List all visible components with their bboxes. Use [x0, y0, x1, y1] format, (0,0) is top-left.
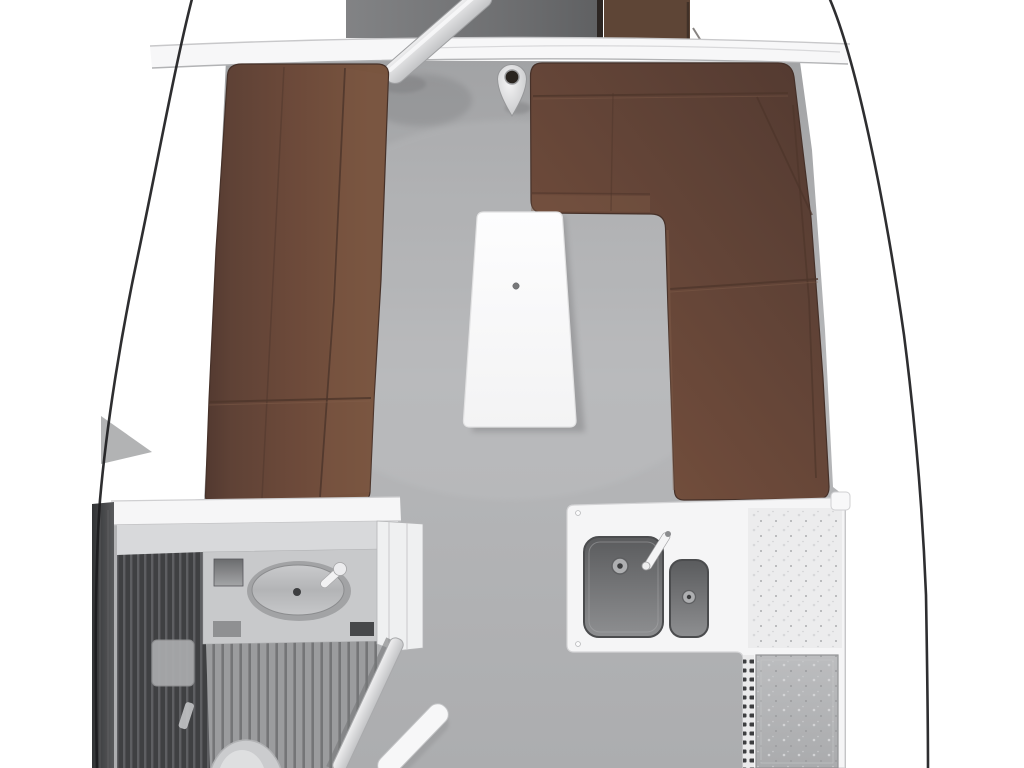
basin-drain — [293, 588, 301, 596]
stove-gimbal-strip — [743, 655, 754, 768]
table-fitting — [513, 283, 519, 289]
vanity-hinge-right — [350, 622, 374, 636]
table-top — [463, 212, 576, 427]
counter-tab — [831, 492, 850, 510]
floor-plan-canvas — [0, 0, 1024, 768]
counter-screw — [576, 642, 581, 647]
counter-texture — [748, 508, 842, 648]
galley-sink-large — [584, 537, 663, 637]
sink-bowl-large — [584, 537, 663, 637]
front-roll-seam — [532, 193, 650, 194]
galley-sink-small — [670, 560, 708, 637]
drain-hole — [617, 563, 623, 569]
counter-screw — [576, 511, 581, 516]
vanity-fixture — [214, 559, 243, 586]
cabin-divider — [597, 0, 603, 41]
boat-floor-plan — [0, 0, 1024, 768]
saloon-table — [463, 212, 585, 432]
head-door-frame — [377, 521, 423, 651]
faucet-base — [334, 563, 347, 576]
stove-unit — [743, 655, 838, 768]
post-hole — [505, 70, 519, 84]
faucet-base — [642, 562, 650, 570]
shower-locker — [117, 552, 210, 768]
faucet-tip — [665, 531, 671, 537]
vanity — [203, 549, 382, 644]
drain-hole — [687, 595, 691, 599]
seat-front-roll — [531, 195, 650, 212]
stove-texture — [756, 655, 838, 768]
port-settee — [205, 64, 388, 503]
vanity-hinge-left — [213, 621, 241, 637]
locker-hatch — [152, 640, 194, 686]
head-top-band — [111, 497, 401, 525]
